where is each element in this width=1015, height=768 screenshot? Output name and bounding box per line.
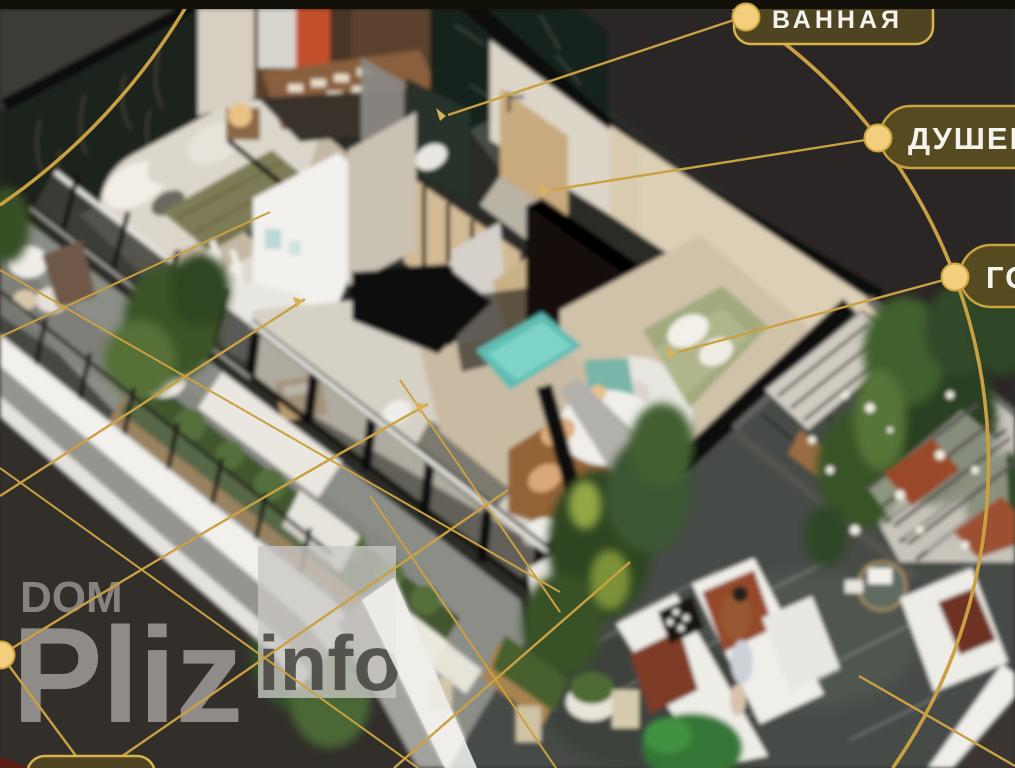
svg-text:Pliz: Pliz [12,599,242,751]
svg-text:ВАННАЯ: ВАННАЯ [772,6,903,34]
svg-text:ДУШЕВ: ДУШЕВ [908,121,1015,156]
svg-text:ГО: ГО [986,260,1015,295]
